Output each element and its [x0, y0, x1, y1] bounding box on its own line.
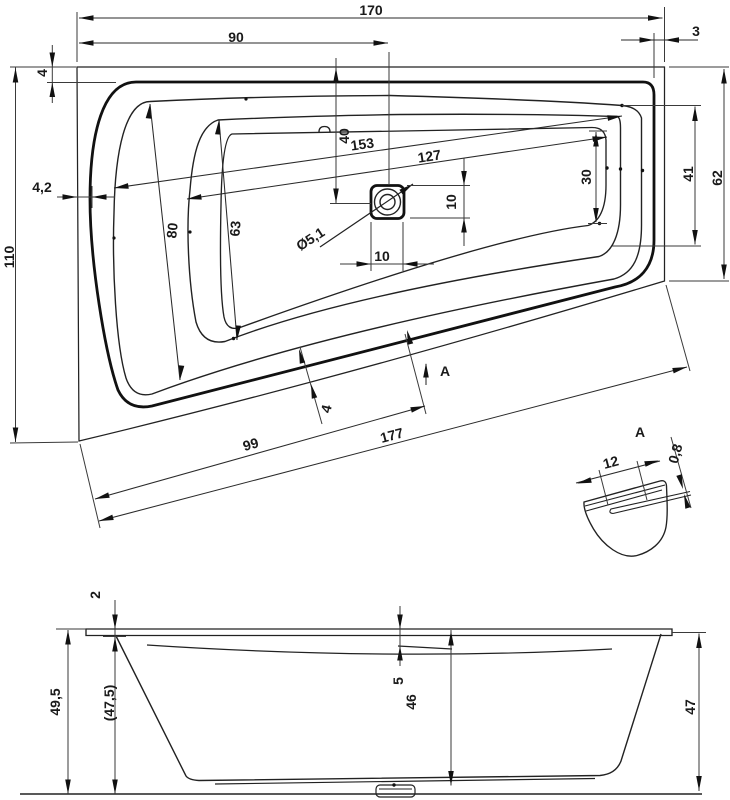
svg-text:4,2: 4,2 [32, 179, 52, 195]
svg-text:2: 2 [87, 591, 103, 599]
svg-text:(47,5): (47,5) [101, 685, 117, 722]
svg-text:40: 40 [336, 128, 352, 144]
svg-text:49,5: 49,5 [47, 688, 63, 715]
svg-text:170: 170 [359, 2, 383, 18]
svg-text:80: 80 [163, 222, 181, 239]
svg-text:5: 5 [390, 677, 406, 685]
svg-text:62: 62 [709, 170, 725, 186]
svg-text:47: 47 [682, 699, 698, 715]
svg-text:4: 4 [34, 69, 50, 77]
svg-text:153: 153 [350, 134, 376, 153]
svg-text:41: 41 [680, 166, 696, 182]
svg-text:10: 10 [374, 248, 390, 264]
svg-text:10: 10 [443, 194, 459, 210]
svg-text:63: 63 [226, 220, 243, 237]
svg-text:3: 3 [692, 23, 700, 39]
svg-text:46: 46 [403, 694, 419, 710]
svg-text:127: 127 [417, 146, 443, 165]
svg-text:90: 90 [228, 29, 244, 45]
svg-text:110: 110 [1, 245, 17, 268]
svg-text:30: 30 [578, 169, 594, 185]
svg-text:A: A [440, 363, 450, 379]
svg-text:A: A [635, 424, 645, 440]
